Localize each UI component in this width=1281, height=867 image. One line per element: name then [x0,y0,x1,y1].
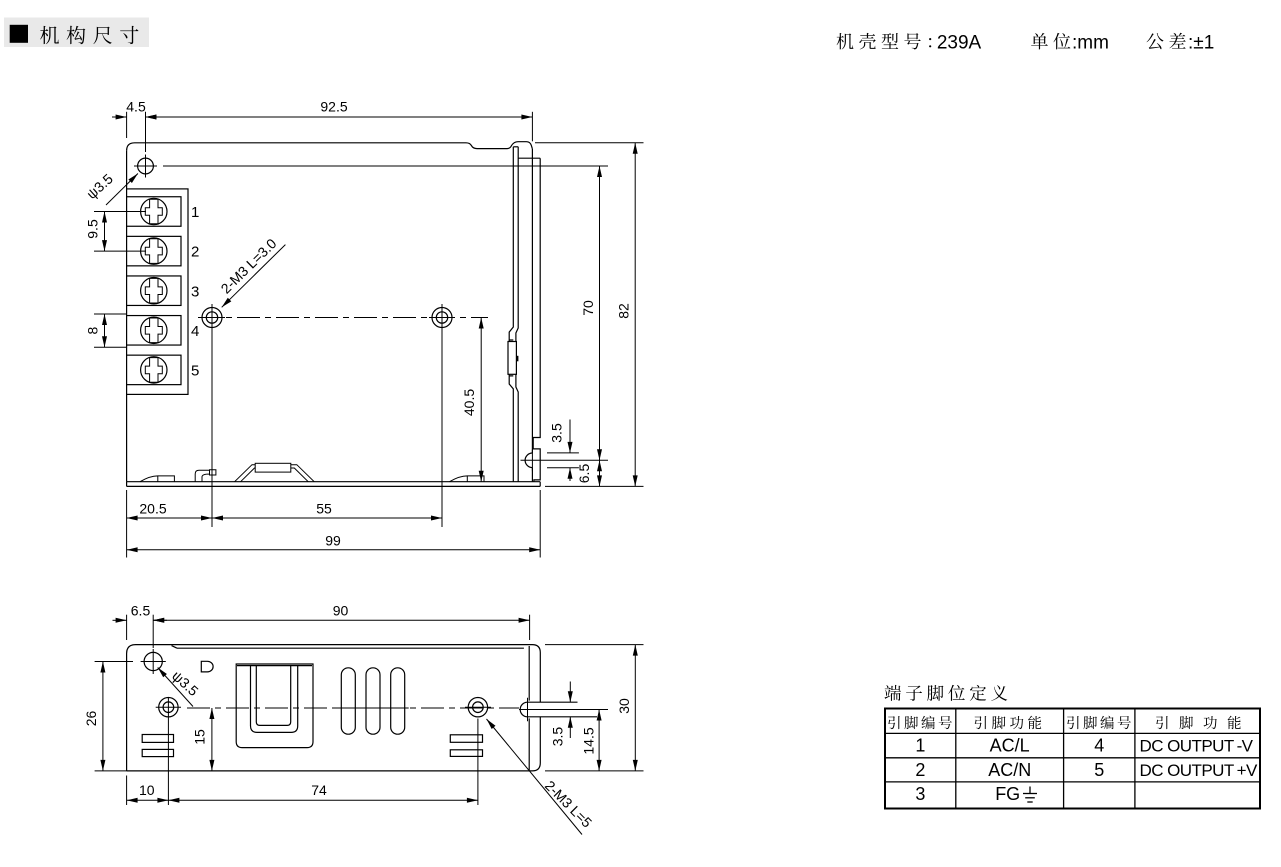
svg-text:9.5: 9.5 [85,219,101,239]
svg-text:3: 3 [191,283,199,300]
svg-text:5: 5 [1094,760,1104,780]
svg-text:AC/N: AC/N [988,760,1031,780]
svg-text:4.5: 4.5 [126,99,146,115]
svg-text:239A: 239A [937,33,982,54]
svg-text:4: 4 [1094,736,1104,756]
svg-text:92.5: 92.5 [320,99,347,115]
svg-text:70: 70 [580,300,596,316]
svg-text:1: 1 [915,736,925,756]
svg-text:3: 3 [915,784,925,804]
svg-text:20.5: 20.5 [139,500,166,516]
svg-text:AC/L: AC/L [990,736,1030,756]
svg-text:2: 2 [191,244,199,261]
svg-text:99: 99 [325,532,341,548]
svg-text:FG: FG [995,784,1020,804]
svg-text:5: 5 [191,363,199,380]
svg-text:14.5: 14.5 [581,727,597,754]
svg-text:DC OUTPUT +V: DC OUTPUT +V [1140,761,1258,780]
svg-text:DC OUTPUT -V: DC OUTPUT -V [1140,737,1254,756]
svg-text:6.5: 6.5 [576,464,592,484]
svg-text:74: 74 [311,782,327,798]
svg-text:3.5: 3.5 [549,727,565,747]
svg-text:90: 90 [333,602,349,618]
svg-text:55: 55 [316,500,332,516]
svg-text:30: 30 [616,698,632,714]
svg-text:4: 4 [191,323,199,340]
svg-text::mm: :mm [1072,33,1109,54]
svg-text:10: 10 [139,782,155,798]
svg-text:26: 26 [83,711,99,727]
svg-text:82: 82 [616,303,632,319]
svg-text:40.5: 40.5 [461,389,477,416]
svg-text::±1: :±1 [1188,33,1214,54]
svg-text:2: 2 [915,760,925,780]
svg-text:3.5: 3.5 [549,423,565,443]
svg-text:1: 1 [191,204,199,221]
svg-text:8: 8 [85,326,101,334]
svg-text:6.5: 6.5 [131,602,151,618]
svg-text:15: 15 [192,729,208,745]
